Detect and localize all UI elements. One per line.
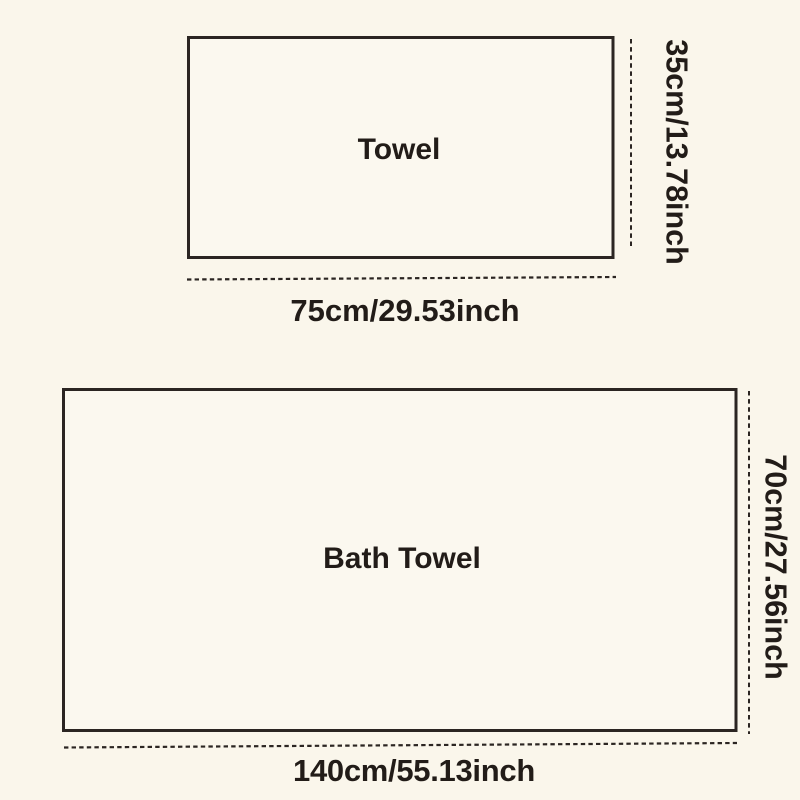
svg-text:35cm/13.78inch: 35cm/13.78inch <box>660 39 694 265</box>
svg-text:Bath Towel: Bath Towel <box>323 542 481 575</box>
svg-text:Towel: Towel <box>358 133 441 166</box>
svg-text:70cm/27.56inch: 70cm/27.56inch <box>759 454 793 680</box>
svg-text:140cm/55.13inch: 140cm/55.13inch <box>293 753 535 788</box>
svg-text:75cm/29.53inch: 75cm/29.53inch <box>290 293 519 328</box>
